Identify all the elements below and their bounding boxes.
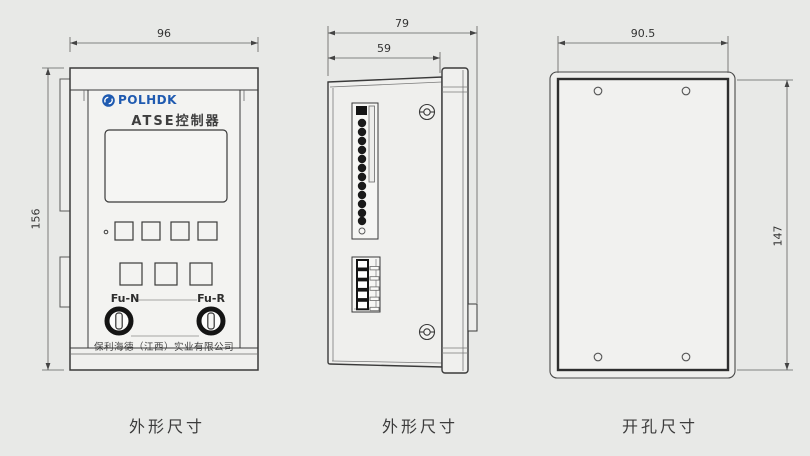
technical-drawing-canvas: 96 156 POLHDK ATSE控制器 Fu-N Fu-R 保利海德（江西）… bbox=[0, 0, 810, 456]
brand-row: POLHDK bbox=[102, 93, 177, 107]
front-height-dim-label: 156 bbox=[30, 209, 43, 230]
fuse-label-n: Fu-N bbox=[111, 292, 140, 305]
cutout-view-caption: 开孔尺寸 bbox=[622, 413, 698, 437]
front-view-lineart bbox=[42, 37, 258, 370]
side-screw-bottom bbox=[420, 325, 435, 340]
side-terminal-strip-top bbox=[352, 103, 378, 239]
cutout-height-dim-label: 147 bbox=[772, 226, 785, 247]
side-body bbox=[328, 77, 442, 367]
front-width-dim-label: 96 bbox=[157, 27, 171, 40]
side-body-depth-label: 59 bbox=[377, 42, 391, 55]
drawing-lineart bbox=[0, 0, 810, 456]
front-mount-tab-bottom bbox=[60, 257, 70, 307]
product-name: ATSE控制器 bbox=[131, 110, 220, 129]
side-body-depth-dimension bbox=[328, 52, 440, 73]
cutout-view-lineart bbox=[550, 36, 793, 378]
side-view-lineart bbox=[328, 26, 477, 373]
fuse-holder-r bbox=[199, 309, 223, 333]
cutout-width-dim-label: 90.5 bbox=[631, 27, 656, 40]
front-display bbox=[105, 130, 227, 202]
side-screw-top bbox=[420, 105, 435, 120]
polhdk-logo-icon bbox=[102, 94, 115, 107]
side-terminal-block-bottom bbox=[352, 257, 380, 312]
company-name: 保利海德（江西）实业有限公司 bbox=[94, 339, 234, 353]
fuse-holder-n bbox=[107, 309, 131, 333]
side-rear-clip bbox=[468, 304, 477, 331]
fuse-label-r: Fu-R bbox=[197, 292, 225, 305]
cutout-width-dimension bbox=[558, 36, 728, 73]
front-mount-tab-top bbox=[60, 79, 70, 211]
cutout-opening bbox=[558, 79, 728, 370]
cutout-height-dimension bbox=[737, 80, 793, 370]
side-total-depth-label: 79 bbox=[395, 17, 409, 30]
front-view-caption: 外形尺寸 bbox=[129, 413, 205, 437]
brand-text: POLHDK bbox=[118, 93, 177, 107]
side-bezel bbox=[442, 68, 468, 373]
side-view-caption: 外形尺寸 bbox=[382, 413, 458, 437]
